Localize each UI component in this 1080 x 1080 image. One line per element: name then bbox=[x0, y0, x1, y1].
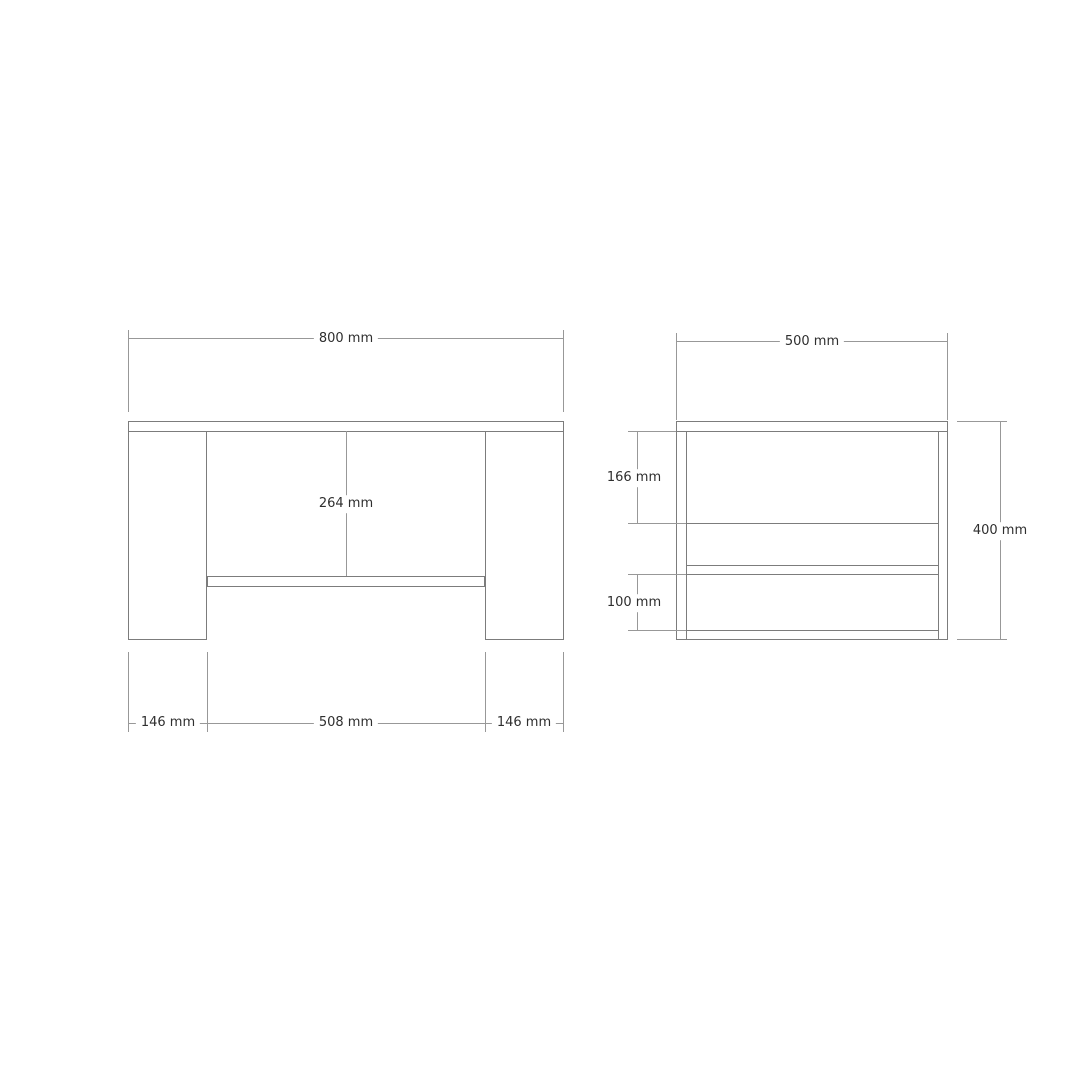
front-bottom-extension-line-1 bbox=[128, 652, 129, 732]
front-inner-span-dim-label: 508 mm bbox=[314, 714, 378, 732]
front-view-right-leg bbox=[485, 431, 564, 640]
front-width-extension-line-left bbox=[128, 330, 129, 412]
technical-drawing-canvas: 800 mm 264 mm 146 mm 508 mm 146 mm 500 m… bbox=[0, 0, 1080, 1080]
side-view-shelf-bottom-line bbox=[687, 574, 938, 575]
side-lower-extension-line-bottom bbox=[628, 630, 686, 631]
side-depth-extension-line-right bbox=[947, 333, 948, 420]
front-left-foot-dim-label: 146 mm bbox=[136, 714, 200, 732]
side-view-shelf-top-line bbox=[687, 565, 938, 566]
front-view-left-leg bbox=[128, 431, 207, 640]
side-lower-opening-dim-label: 100 mm bbox=[602, 594, 666, 612]
side-view-right-panel-line bbox=[938, 431, 939, 640]
front-width-dim-label: 800 mm bbox=[314, 330, 378, 348]
front-width-extension-line-right bbox=[563, 330, 564, 412]
side-view-tabletop-underside-line bbox=[676, 431, 948, 432]
side-upper-extension-line-top bbox=[628, 431, 676, 432]
front-opening-height-dim-label: 264 mm bbox=[314, 495, 378, 513]
front-right-foot-dim-label: 146 mm bbox=[492, 714, 556, 732]
front-view-shelf bbox=[207, 576, 485, 587]
front-bottom-extension-line-2 bbox=[207, 652, 208, 732]
side-view-lower-rail-line bbox=[687, 630, 938, 631]
side-height-dim-label: 400 mm bbox=[968, 522, 1032, 540]
front-bottom-extension-line-4 bbox=[563, 652, 564, 732]
side-depth-extension-line-left bbox=[676, 333, 677, 420]
side-view-upper-rail-line bbox=[687, 523, 938, 524]
side-depth-dim-label: 500 mm bbox=[780, 333, 844, 351]
side-upper-opening-dim-label: 166 mm bbox=[602, 469, 666, 487]
side-view-left-panel-line bbox=[686, 431, 687, 640]
side-view-outline bbox=[676, 421, 948, 640]
side-upper-extension-line-bottom bbox=[628, 523, 686, 524]
front-bottom-extension-line-3 bbox=[485, 652, 486, 732]
